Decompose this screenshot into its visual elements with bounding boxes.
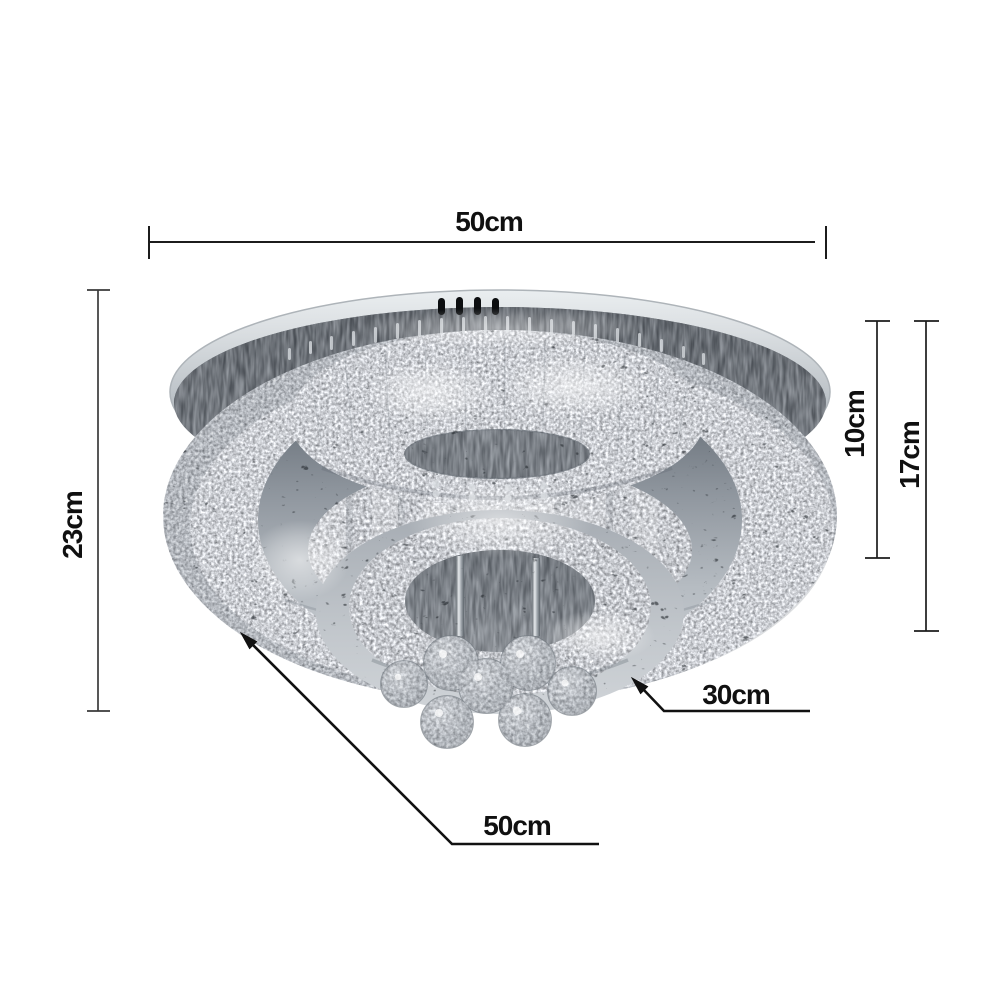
svg-text:50cm: 50cm xyxy=(483,810,551,841)
svg-text:23cm: 23cm xyxy=(57,491,88,559)
svg-text:10cm: 10cm xyxy=(839,390,870,458)
svg-text:50cm: 50cm xyxy=(455,206,523,237)
svg-text:30cm: 30cm xyxy=(702,679,770,710)
svg-text:17cm: 17cm xyxy=(894,421,925,489)
